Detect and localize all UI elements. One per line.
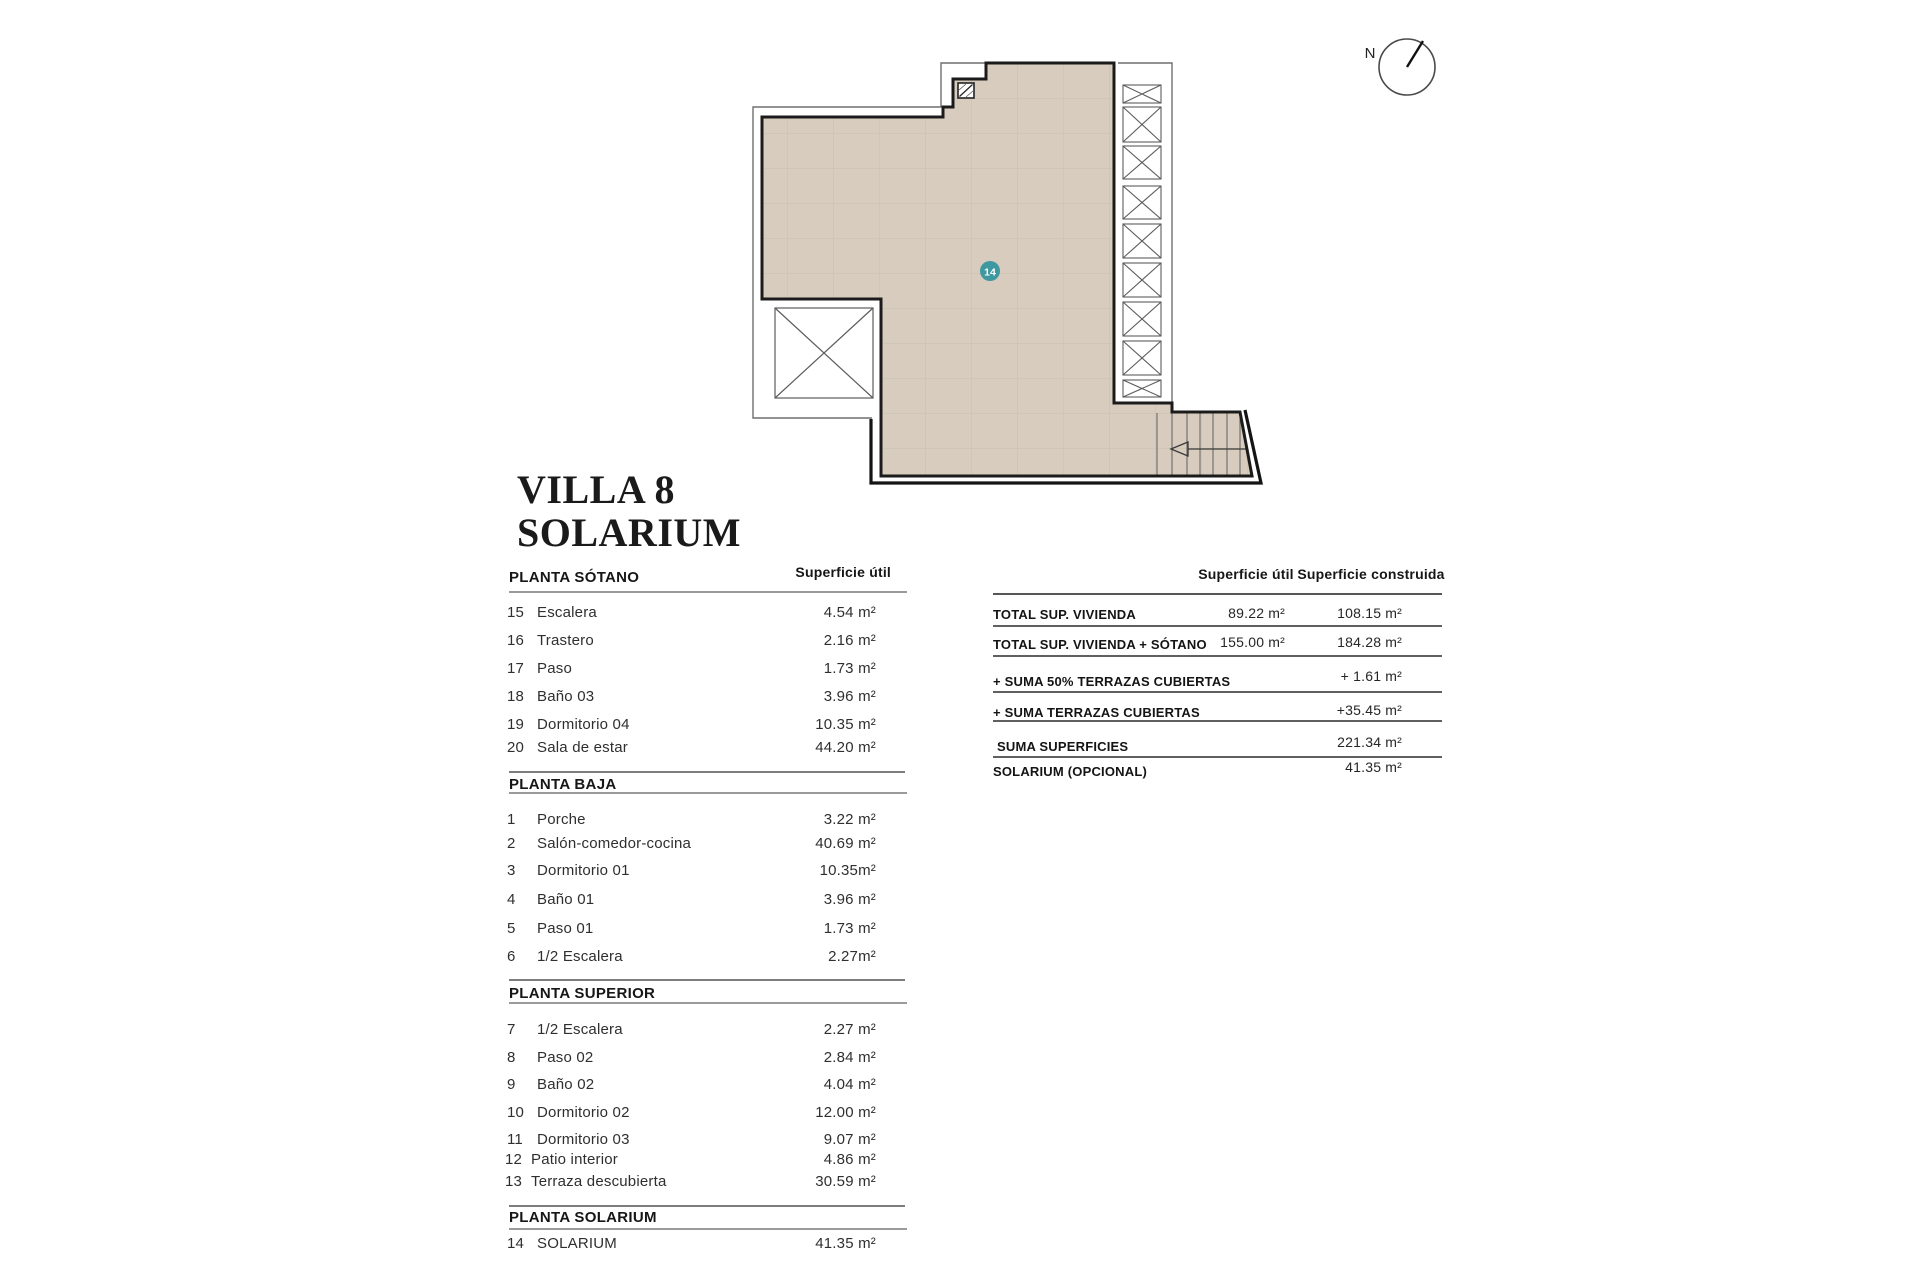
room-label: Dormitorio 03 [537, 1130, 630, 1150]
section-header-solarium: PLANTA SOLARIUM [509, 1209, 657, 1227]
section-underline [509, 1002, 907, 1004]
room-area: 2.16 m² [626, 631, 876, 651]
room-number: 6 [507, 947, 533, 967]
summary-row-label: + SUMA 50% TERRAZAS CUBIERTAS [993, 674, 1230, 690]
summary-row-divider [993, 720, 1442, 722]
louver-beam [1123, 85, 1161, 103]
room-area: 4.54 m² [626, 603, 876, 623]
room-area: 2.84 m² [626, 1048, 876, 1068]
room-label: Sala de estar [537, 738, 628, 758]
room-area: 3.96 m² [626, 687, 876, 707]
summary-row-label: SOLARIUM (OPCIONAL) [993, 764, 1147, 780]
room-area: 10.35m² [626, 861, 876, 881]
room-label: Trastero [537, 631, 594, 651]
summary-row-divider [993, 756, 1442, 758]
room-label: Dormitorio 04 [537, 715, 630, 735]
room-number: 5 [507, 919, 533, 939]
summary-row-label: TOTAL SUP. VIVIENDA [993, 607, 1136, 623]
room-area: 2.27m² [626, 947, 876, 967]
room-number: 11 [507, 1130, 533, 1150]
room-number: 14 [507, 1234, 533, 1254]
summary-row-divider [993, 691, 1442, 693]
room-area: 4.04 m² [626, 1075, 876, 1095]
room-number: 13 [505, 1172, 531, 1192]
louver-beam [1123, 380, 1161, 397]
chimney-symbol [958, 83, 974, 98]
room-area: 30.59 m² [626, 1172, 876, 1192]
summary-col-header-construida: Superficie construida [1295, 566, 1447, 583]
floorplan-drawing: 14 N [0, 0, 1920, 1280]
room-label: Paso 02 [537, 1048, 593, 1068]
summary-row-construida: 184.28 m² [1260, 634, 1402, 651]
room-area: 2.27 m² [626, 1020, 876, 1040]
room-label: 1/2 Escalera [537, 1020, 623, 1040]
room-number: 2 [507, 834, 533, 854]
room-label: Paso 01 [537, 919, 593, 939]
room-label: Paso [537, 659, 572, 679]
room-label: Patio interior [531, 1150, 618, 1170]
louver-beam [1123, 302, 1161, 336]
summary-row-divider [993, 655, 1442, 657]
section-header-sotano: PLANTA SÓTANO [509, 569, 639, 587]
room-number: 7 [507, 1020, 533, 1040]
room-number: 1 [507, 810, 533, 830]
room-area: 3.96 m² [626, 890, 876, 910]
louver-beams [1123, 85, 1161, 397]
room-area: 3.22 m² [626, 810, 876, 830]
room-label: 1/2 Escalera [537, 947, 623, 967]
summary-row-construida: +35.45 m² [1260, 702, 1402, 719]
room-label: Porche [537, 810, 586, 830]
page-title: VILLA 8 SOLARIUM [517, 468, 741, 554]
room-number: 3 [507, 861, 533, 881]
section-underline [509, 1228, 907, 1230]
room-label: Baño 01 [537, 890, 594, 910]
room-label: Dormitorio 01 [537, 861, 630, 881]
page-title-line2: SOLARIUM [517, 511, 741, 554]
room-number: 4 [507, 890, 533, 910]
room-area: 9.07 m² [626, 1130, 876, 1150]
page-title-line1: VILLA 8 [517, 468, 741, 511]
louver-beam [1123, 107, 1161, 142]
louver-beam [1123, 146, 1161, 179]
section-divider [509, 771, 905, 773]
room-number: 19 [507, 715, 533, 735]
room-number: 12 [505, 1150, 531, 1170]
skylight-box [775, 308, 873, 398]
room-number: 15 [507, 603, 533, 623]
summary-row-construida: 221.34 m² [1260, 734, 1402, 751]
louver-beam [1123, 263, 1161, 297]
summary-row-construida: + 1.61 m² [1260, 668, 1402, 685]
section-divider [509, 979, 905, 981]
summary-header-underline [993, 593, 1442, 595]
room-number-badge-label: 14 [984, 267, 996, 279]
louver-beam [1123, 341, 1161, 375]
room-number: 18 [507, 687, 533, 707]
section-underline [509, 591, 907, 593]
room-area: 1.73 m² [626, 919, 876, 939]
room-area: 1.73 m² [626, 659, 876, 679]
north-label: N [1365, 45, 1376, 62]
room-label: Dormitorio 02 [537, 1103, 630, 1123]
floorplan-sheet: 14 N VILLA 8 SOLARIUM Superficie útil PL… [0, 0, 1920, 1280]
summary-row-label: + SUMA TERRAZAS CUBIERTAS [993, 705, 1200, 721]
room-number: 20 [507, 738, 533, 758]
summary-row-construida: 41.35 m² [1260, 759, 1402, 776]
summary-row-divider [993, 625, 1442, 627]
section-underline [509, 792, 907, 794]
summary-row-label: SUMA SUPERFICIES [997, 739, 1128, 755]
room-number: 10 [507, 1103, 533, 1123]
room-area: 41.35 m² [626, 1234, 876, 1254]
room-area: 12.00 m² [626, 1103, 876, 1123]
room-label: Escalera [537, 603, 597, 623]
room-number-badge: 14 [980, 261, 1000, 281]
north-indicator: N [1365, 39, 1435, 95]
louver-beam [1123, 224, 1161, 258]
room-area: 44.20 m² [626, 738, 876, 758]
room-label: Baño 02 [537, 1075, 594, 1095]
room-area: 40.69 m² [626, 834, 876, 854]
room-number: 9 [507, 1075, 533, 1095]
room-number: 16 [507, 631, 533, 651]
section-header-superior: PLANTA SUPERIOR [509, 985, 655, 1003]
room-area: 4.86 m² [626, 1150, 876, 1170]
room-label: Baño 03 [537, 687, 594, 707]
room-label: SOLARIUM [537, 1234, 617, 1254]
section-divider [509, 1205, 905, 1207]
floor-tile-grid [762, 63, 1252, 476]
room-number: 17 [507, 659, 533, 679]
louver-beam [1123, 186, 1161, 219]
room-area: 10.35 m² [626, 715, 876, 735]
room-number: 8 [507, 1048, 533, 1068]
summary-row-construida: 108.15 m² [1260, 605, 1402, 622]
